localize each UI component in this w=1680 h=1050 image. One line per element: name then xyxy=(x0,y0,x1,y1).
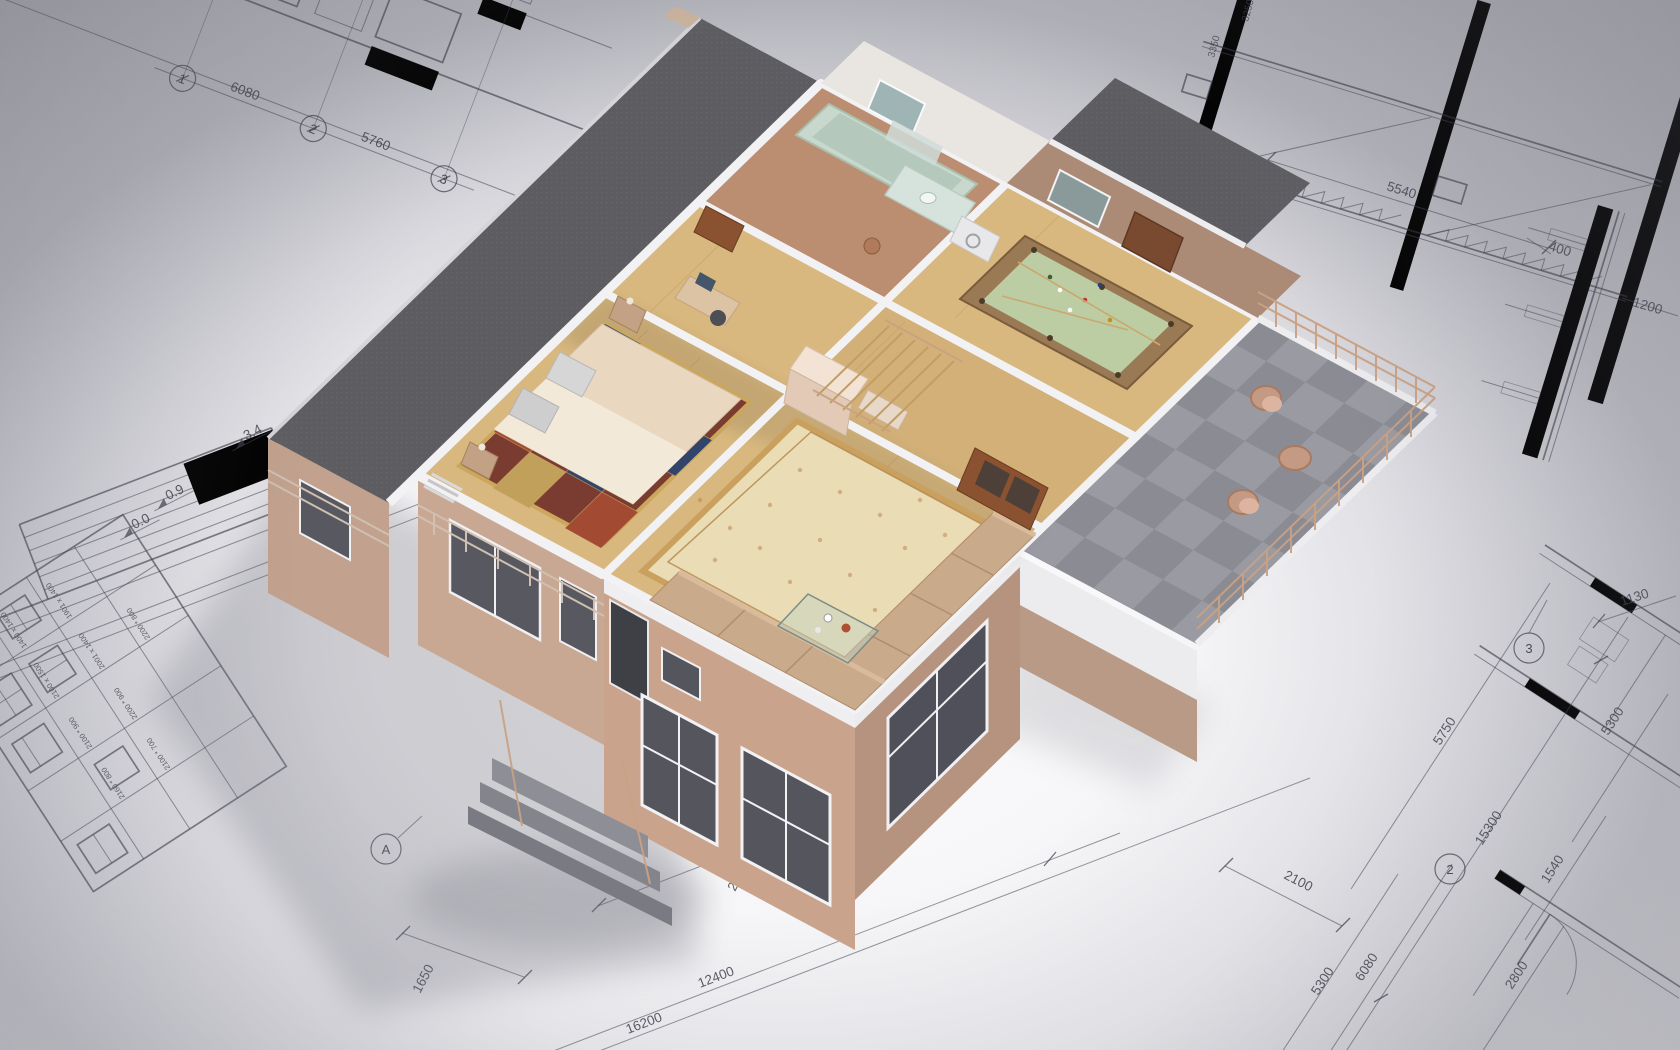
dim-label-5760: 5760 xyxy=(359,129,392,154)
dim-label-2800: 2800 xyxy=(1502,958,1531,991)
architectural-render: 1 2 3 6080 5760 xyxy=(0,0,1680,1050)
dim-label-1200: 1200 xyxy=(1631,294,1664,317)
dim-label-16200: 16200 xyxy=(624,1009,664,1036)
wicker-chair-2 xyxy=(1228,490,1259,514)
floor-plan-fragment-right xyxy=(1474,545,1680,817)
dim-label-6080-right: 6080 xyxy=(1352,950,1381,983)
schedule-entry-7: 2160 * 800 xyxy=(99,766,126,801)
lamp xyxy=(627,298,634,305)
floor-plan-fragment-bottom-right xyxy=(1435,870,1680,1050)
wicker-table xyxy=(1279,446,1311,470)
schedule-entry-3: 2001 x 1400 xyxy=(77,631,107,671)
axis-label-2-right: 2 xyxy=(1446,862,1453,877)
dim-label-5750: 5750 xyxy=(1430,714,1459,747)
level-label-0-9: 0.9 xyxy=(163,481,187,503)
wall-section-drawing xyxy=(1465,187,1625,461)
dim-label-12400: 12400 xyxy=(696,963,736,990)
dim-label-5300-a: 5300 xyxy=(1308,964,1337,997)
dim-label-6080-topleft: 6080 xyxy=(228,79,261,104)
cup xyxy=(815,627,821,633)
teapot xyxy=(824,614,832,622)
office-chair xyxy=(710,310,726,326)
axis-label-3: 3 xyxy=(438,171,450,188)
dim-label-15300: 15300 xyxy=(1472,808,1505,848)
axis-label-2: 2 xyxy=(307,121,319,138)
schedule-entry-5: 2100 * 900 xyxy=(67,715,94,750)
stool xyxy=(864,238,880,254)
dim-label-400: 400 xyxy=(1547,239,1573,260)
right-dimensions: 2100 5300 6080 15300 2 1540 2800 5750 3 … xyxy=(1219,583,1676,1050)
sink xyxy=(920,193,936,204)
tray xyxy=(842,624,851,633)
dim-label-2100: 2100 xyxy=(1282,867,1316,894)
balcony-hatching xyxy=(215,0,527,112)
lamp-2 xyxy=(479,444,486,451)
axis-label-1: 1 xyxy=(176,71,188,88)
blueprint-and-house-scene: 1 2 3 6080 5760 xyxy=(0,0,1680,1050)
schedule-entry-1: 1901 x 1400 xyxy=(44,581,74,621)
dim-label-5300-b: 5300 xyxy=(1598,704,1627,737)
axis-label-3-right: 3 xyxy=(1525,641,1532,656)
dim-label-1540: 1540 xyxy=(1538,852,1567,885)
